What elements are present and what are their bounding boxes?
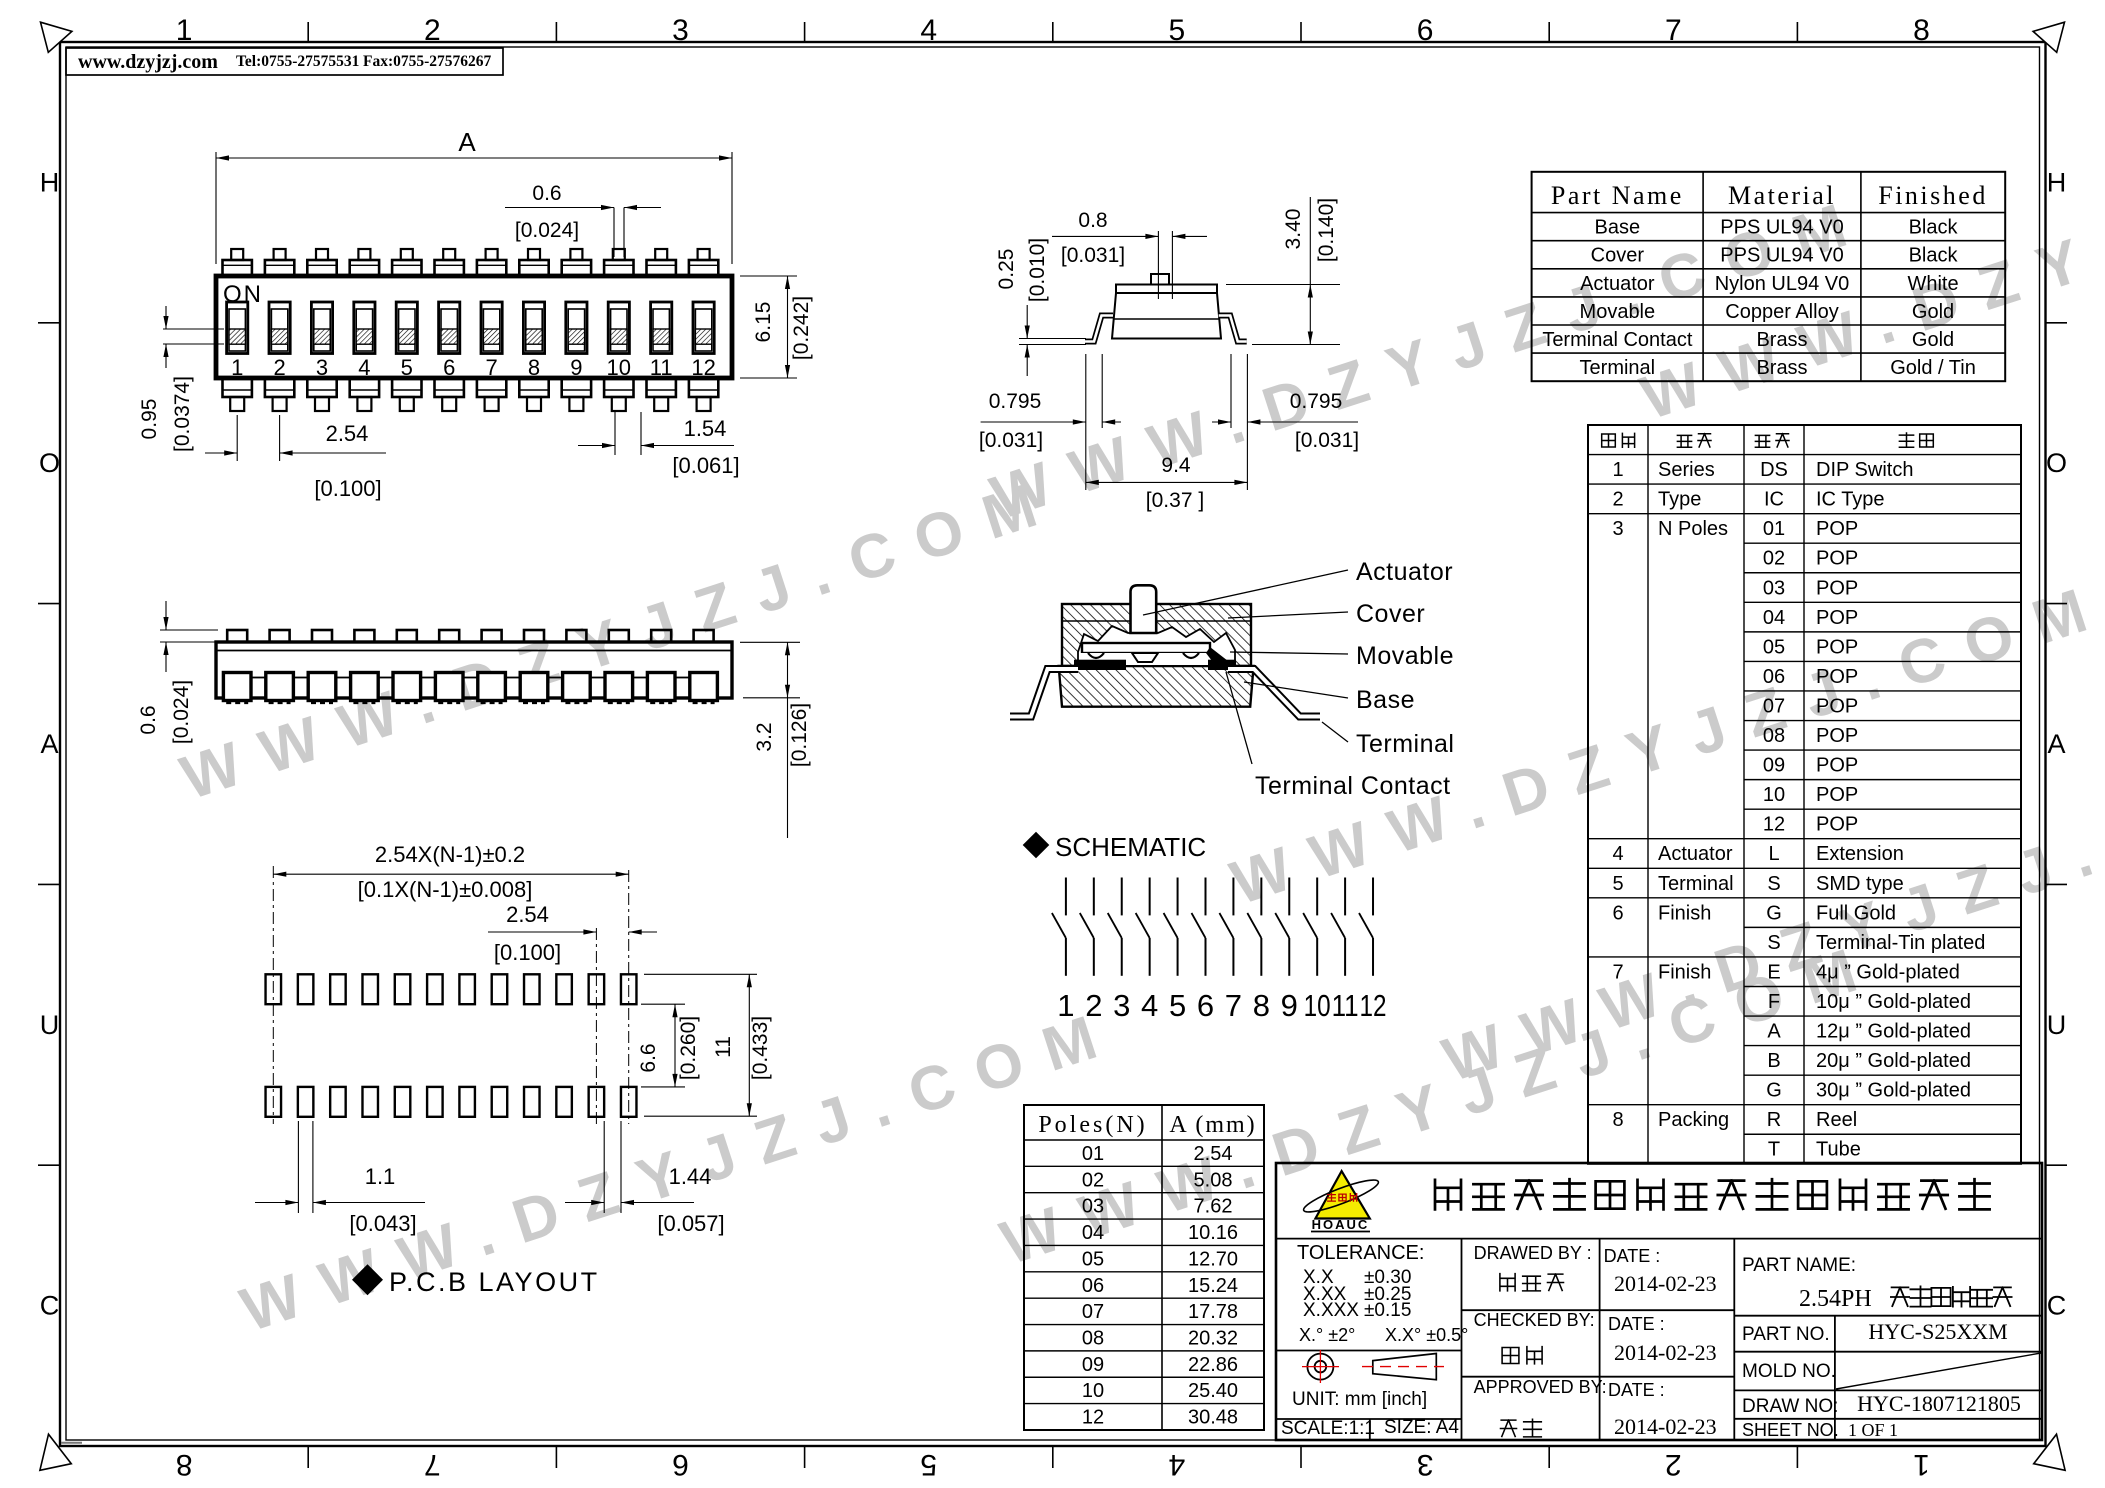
svg-text:2: 2: [1665, 1448, 1682, 1481]
svg-text:0.95: 0.95: [138, 399, 161, 440]
svg-text:DIP Switch: DIP Switch: [1816, 459, 1913, 481]
svg-text:1: 1: [231, 355, 243, 380]
svg-text:08: 08: [1082, 1328, 1104, 1350]
svg-text:Copper Alloy: Copper Alloy: [1725, 301, 1838, 323]
svg-text:7: 7: [424, 1448, 441, 1481]
svg-text:Terminal Contact: Terminal Contact: [1255, 772, 1451, 800]
svg-text:3.2: 3.2: [753, 722, 776, 751]
svg-text:DS: DS: [1760, 459, 1788, 481]
svg-text:[0.0374]: [0.0374]: [171, 376, 194, 452]
svg-text:5: 5: [1169, 988, 1186, 1023]
svg-text:2.54: 2.54: [326, 421, 369, 446]
svg-text:3: 3: [316, 355, 328, 380]
svg-text:1 OF 1: 1 OF 1: [1848, 1420, 1898, 1440]
svg-text:7: 7: [1665, 14, 1682, 47]
svg-text:POP: POP: [1816, 636, 1858, 658]
svg-text:22.86: 22.86: [1188, 1354, 1238, 1376]
svg-text:POP: POP: [1816, 548, 1858, 570]
svg-text:6: 6: [672, 1448, 689, 1481]
svg-text:4: 4: [920, 14, 937, 47]
svg-text:2: 2: [424, 14, 441, 47]
svg-text:30.48: 30.48: [1188, 1407, 1238, 1429]
svg-text:6: 6: [1417, 14, 1434, 47]
svg-text:5: 5: [920, 1448, 937, 1481]
svg-text:IC Type: IC Type: [1816, 489, 1885, 511]
svg-text:2.54X(N-1)±0.2: 2.54X(N-1)±0.2: [375, 842, 525, 867]
svg-text:0.795: 0.795: [989, 390, 1042, 413]
svg-text:Terminal: Terminal: [1658, 873, 1734, 895]
svg-text:5: 5: [1169, 14, 1186, 47]
svg-text:01: 01: [1082, 1143, 1104, 1165]
svg-text:8: 8: [528, 355, 540, 380]
svg-text:06: 06: [1763, 666, 1785, 688]
svg-text:2: 2: [1612, 489, 1623, 511]
svg-text:11: 11: [712, 1036, 735, 1058]
svg-text:C: C: [40, 1291, 60, 1321]
svg-text:POP: POP: [1816, 607, 1858, 629]
svg-text:Gold: Gold: [1912, 329, 1954, 351]
svg-text:0.6: 0.6: [137, 705, 160, 734]
svg-text:8: 8: [176, 1448, 193, 1481]
svg-text:SCALE:1:1: SCALE:1:1: [1281, 1418, 1375, 1439]
svg-text:±0.15: ±0.15: [1364, 1300, 1411, 1321]
svg-text:N Poles: N Poles: [1658, 518, 1728, 540]
svg-text:PART NO.: PART NO.: [1742, 1324, 1830, 1345]
svg-text:DRAW NO:: DRAW NO:: [1742, 1396, 1838, 1417]
svg-text:6.6: 6.6: [637, 1043, 660, 1072]
svg-text:Actuator: Actuator: [1658, 843, 1733, 865]
svg-text:12.70: 12.70: [1188, 1248, 1238, 1270]
svg-text:25.40: 25.40: [1188, 1380, 1238, 1402]
svg-text:9: 9: [570, 355, 582, 380]
svg-text:1: 1: [1913, 1448, 1930, 1481]
svg-text:SHEET NO.: SHEET NO.: [1742, 1420, 1839, 1440]
svg-text:Base: Base: [1595, 217, 1641, 239]
svg-text:[0.057]: [0.057]: [657, 1211, 724, 1236]
svg-text:8: 8: [1913, 14, 1930, 47]
svg-text:2014-02-23: 2014-02-23: [1614, 1414, 1717, 1439]
svg-text:POP: POP: [1816, 577, 1858, 599]
svg-text:POP: POP: [1816, 725, 1858, 747]
svg-text:5: 5: [1612, 873, 1623, 895]
svg-text:A: A: [458, 127, 476, 157]
svg-text:PART NAME:: PART NAME:: [1742, 1255, 1856, 1276]
svg-text:[0.031]: [0.031]: [979, 429, 1043, 452]
svg-text:A: A: [40, 729, 58, 759]
svg-text:POP: POP: [1816, 518, 1858, 540]
svg-text:SCHEMATIC: SCHEMATIC: [1055, 832, 1206, 862]
svg-text:Finish: Finish: [1658, 961, 1711, 983]
svg-text:12μ ” Gold-plated: 12μ ” Gold-plated: [1816, 1021, 1971, 1043]
svg-text:Terminal-Tin plated: Terminal-Tin plated: [1816, 932, 1985, 954]
svg-text:DATE :: DATE :: [1608, 1380, 1665, 1400]
svg-text:A (mm): A (mm): [1169, 1112, 1256, 1138]
svg-text:04: 04: [1082, 1222, 1104, 1244]
svg-text:APPROVED BY:: APPROVED BY:: [1474, 1377, 1607, 1397]
svg-text:S: S: [1767, 873, 1780, 895]
svg-text:O: O: [39, 448, 60, 478]
svg-text:10: 10: [1763, 784, 1785, 806]
svg-text:POP: POP: [1816, 695, 1858, 717]
svg-text:H: H: [40, 167, 60, 197]
svg-text:[0.140]: [0.140]: [1315, 198, 1338, 262]
svg-text:U: U: [2047, 1010, 2067, 1040]
svg-text:Tube: Tube: [1816, 1139, 1861, 1161]
svg-text:H: H: [2047, 167, 2067, 197]
svg-text:PPS UL94 V0: PPS UL94 V0: [1720, 217, 1843, 239]
svg-text:G: G: [1766, 1080, 1782, 1102]
svg-text:12: 12: [1360, 988, 1387, 1023]
svg-text:[0.043]: [0.043]: [349, 1211, 416, 1236]
svg-text:PPS UL94 V0: PPS UL94 V0: [1720, 245, 1843, 267]
svg-text:HOAUC: HOAUC: [1312, 1217, 1370, 1232]
svg-text:7: 7: [485, 355, 497, 380]
svg-text:Terminal Contact: Terminal Contact: [1542, 329, 1693, 351]
svg-text:www.dzyjzj.com: www.dzyjzj.com: [78, 51, 218, 73]
svg-text:12: 12: [1082, 1407, 1104, 1429]
svg-text:7.62: 7.62: [1194, 1196, 1233, 1218]
svg-text:Poles(N): Poles(N): [1038, 1112, 1147, 1138]
svg-text:6.15: 6.15: [752, 302, 775, 343]
svg-text:03: 03: [1082, 1196, 1104, 1218]
svg-text:[0.031]: [0.031]: [1061, 244, 1125, 267]
svg-text:Terminal: Terminal: [1580, 357, 1656, 379]
svg-text:7: 7: [1612, 961, 1623, 983]
svg-text:Black: Black: [1909, 245, 1959, 267]
svg-text:2: 2: [273, 355, 285, 380]
svg-text:15.24: 15.24: [1188, 1275, 1238, 1297]
svg-text:Packing: Packing: [1658, 1109, 1729, 1131]
svg-text:POP: POP: [1816, 666, 1858, 688]
svg-text:02: 02: [1082, 1169, 1104, 1191]
svg-text:6: 6: [1612, 902, 1623, 924]
svg-text:3: 3: [1612, 518, 1623, 540]
svg-text:2.54: 2.54: [1194, 1143, 1233, 1165]
svg-text:IC: IC: [1764, 489, 1784, 511]
svg-text:MOLD NO.: MOLD NO.: [1742, 1361, 1836, 1382]
svg-text:Finished: Finished: [1878, 181, 1988, 210]
svg-text:2.54PH: 2.54PH: [1799, 1286, 1872, 1312]
svg-text:04: 04: [1763, 607, 1785, 629]
svg-text:02: 02: [1763, 548, 1785, 570]
svg-text:DATE :: DATE :: [1608, 1314, 1665, 1334]
svg-text:10: 10: [1082, 1380, 1104, 1402]
svg-text:L: L: [1768, 843, 1779, 865]
svg-text:8: 8: [1612, 1109, 1623, 1131]
svg-text:F: F: [1768, 991, 1780, 1013]
svg-text:3: 3: [1417, 1448, 1434, 1481]
svg-text:[0.100]: [0.100]: [494, 940, 561, 965]
svg-text:05: 05: [1763, 636, 1785, 658]
svg-text:SIZE: A4: SIZE: A4: [1384, 1417, 1459, 1438]
svg-text:09: 09: [1763, 755, 1785, 777]
svg-text:6: 6: [443, 355, 455, 380]
svg-text:Actuator: Actuator: [1356, 558, 1453, 586]
svg-text:Gold / Tin: Gold / Tin: [1890, 357, 1976, 379]
svg-text:12: 12: [1763, 814, 1785, 836]
svg-text:R: R: [1767, 1109, 1781, 1131]
svg-text:ON: ON: [223, 281, 263, 308]
svg-text:P.C.B LAYOUT: P.C.B LAYOUT: [389, 1267, 600, 1297]
svg-text:G: G: [1766, 902, 1782, 924]
svg-text:[0.433]: [0.433]: [749, 1016, 772, 1080]
svg-text:07: 07: [1763, 695, 1785, 717]
svg-text:Extension: Extension: [1816, 843, 1904, 865]
svg-text:10: 10: [607, 355, 631, 380]
svg-text:POP: POP: [1816, 784, 1858, 806]
svg-text:Base: Base: [1356, 686, 1415, 714]
svg-text:[0.031]: [0.031]: [1295, 429, 1359, 452]
svg-text:Nylon UL94 V0: Nylon UL94 V0: [1715, 273, 1850, 295]
svg-text:[0.260]: [0.260]: [677, 1016, 700, 1080]
svg-text:A: A: [1767, 1021, 1781, 1043]
svg-text:1: 1: [1612, 459, 1623, 481]
svg-text:C: C: [2047, 1291, 2067, 1321]
svg-text:Actuator: Actuator: [1580, 273, 1655, 295]
svg-text:5: 5: [401, 355, 413, 380]
svg-text:Tel:0755-27575531: Tel:0755-27575531: [236, 53, 359, 70]
svg-text:12: 12: [691, 355, 715, 380]
svg-text:[0.126]: [0.126]: [788, 703, 811, 767]
svg-text:20μ ” Gold-plated: 20μ ” Gold-plated: [1816, 1050, 1971, 1072]
svg-text:Full Gold: Full Gold: [1816, 902, 1896, 924]
svg-text:7: 7: [1225, 988, 1242, 1023]
svg-text:[0.100]: [0.100]: [314, 476, 381, 501]
svg-text:Brass: Brass: [1756, 357, 1807, 379]
svg-text:S: S: [1767, 932, 1780, 954]
svg-text:Series: Series: [1658, 459, 1715, 481]
svg-text:T: T: [1768, 1139, 1780, 1161]
svg-text:3: 3: [1113, 988, 1130, 1023]
svg-text:17.78: 17.78: [1188, 1301, 1238, 1323]
svg-text:X.X° ±0.5°: X.X° ±0.5°: [1385, 1325, 1468, 1345]
svg-text:2014-02-23: 2014-02-23: [1614, 1271, 1717, 1296]
svg-text:Cover: Cover: [1356, 600, 1425, 628]
svg-text:[0.061]: [0.061]: [672, 453, 739, 478]
svg-text:0.8: 0.8: [1078, 209, 1107, 232]
svg-text:1.44: 1.44: [669, 1164, 712, 1189]
svg-text:Cover: Cover: [1591, 245, 1645, 267]
svg-text:11: 11: [1332, 988, 1359, 1023]
svg-text:0.795: 0.795: [1290, 390, 1343, 413]
svg-text:10: 10: [1304, 988, 1331, 1023]
svg-text:Material: Material: [1728, 181, 1836, 210]
svg-text:2014-02-23: 2014-02-23: [1614, 1340, 1717, 1365]
svg-text:08: 08: [1763, 725, 1785, 747]
svg-text:09: 09: [1082, 1354, 1104, 1376]
svg-text:Gold: Gold: [1912, 301, 1954, 323]
svg-text:2: 2: [1085, 988, 1102, 1023]
svg-text:Brass: Brass: [1756, 329, 1807, 351]
svg-text:Type: Type: [1658, 489, 1701, 511]
svg-text:HYC-1807121805: HYC-1807121805: [1857, 1391, 2021, 1416]
svg-text:4: 4: [1612, 843, 1623, 865]
svg-text:0.6: 0.6: [532, 182, 561, 205]
svg-text:POP: POP: [1816, 755, 1858, 777]
svg-text:1.54: 1.54: [684, 416, 727, 441]
svg-text:SMD type: SMD type: [1816, 873, 1904, 895]
svg-text:1: 1: [1057, 988, 1074, 1023]
svg-text:8: 8: [1253, 988, 1270, 1023]
svg-text:03: 03: [1763, 577, 1785, 599]
svg-text:6: 6: [1197, 988, 1214, 1023]
svg-text:4: 4: [358, 355, 370, 380]
svg-text:Reel: Reel: [1816, 1109, 1857, 1131]
svg-text:U: U: [40, 1010, 60, 1040]
svg-text:0.25: 0.25: [995, 249, 1018, 290]
svg-text:2.54: 2.54: [506, 902, 549, 927]
svg-text:3.40: 3.40: [1282, 209, 1305, 250]
svg-text:4: 4: [1169, 1448, 1186, 1481]
svg-text:O: O: [2046, 448, 2067, 478]
svg-text:Part Name: Part Name: [1551, 181, 1684, 210]
svg-text:06: 06: [1082, 1275, 1104, 1297]
svg-text:E: E: [1767, 961, 1780, 983]
svg-text:4: 4: [1141, 988, 1158, 1023]
svg-text:[0.37 ]: [0.37 ]: [1146, 489, 1204, 512]
svg-text:TOLERANCE:: TOLERANCE:: [1297, 1242, 1424, 1264]
svg-text:05: 05: [1082, 1248, 1104, 1270]
svg-text:[0.024]: [0.024]: [170, 680, 193, 744]
svg-text:White: White: [1907, 273, 1958, 295]
svg-text:DRAWED BY :: DRAWED BY :: [1474, 1243, 1592, 1263]
svg-text:30μ ” Gold-plated: 30μ ” Gold-plated: [1816, 1080, 1971, 1102]
svg-text:1.1: 1.1: [365, 1164, 396, 1189]
svg-text:9.4: 9.4: [1161, 454, 1191, 477]
svg-text:Finish: Finish: [1658, 902, 1711, 924]
svg-text:Fax:0755-27576267: Fax:0755-27576267: [363, 53, 492, 70]
svg-text:1: 1: [176, 14, 193, 47]
svg-text:UNIT: mm [inch]: UNIT: mm [inch]: [1292, 1389, 1427, 1410]
svg-text:[0.242]: [0.242]: [790, 296, 813, 360]
svg-text:Movable: Movable: [1356, 642, 1454, 670]
svg-text:X.XXX: X.XXX: [1303, 1300, 1359, 1321]
svg-text:4μ ” Gold-plated: 4μ ” Gold-plated: [1816, 961, 1960, 983]
svg-text:07: 07: [1082, 1301, 1104, 1323]
svg-text:11: 11: [650, 355, 673, 380]
svg-text:Movable: Movable: [1580, 301, 1656, 323]
svg-text:Terminal: Terminal: [1356, 730, 1454, 758]
svg-text:B: B: [1767, 1050, 1780, 1072]
svg-text:A: A: [2047, 729, 2065, 759]
svg-text:10.16: 10.16: [1188, 1222, 1238, 1244]
svg-text:[0.024]: [0.024]: [515, 219, 579, 242]
svg-text:POP: POP: [1816, 814, 1858, 836]
svg-text:10μ ” Gold-plated: 10μ ” Gold-plated: [1816, 991, 1971, 1013]
svg-text:5.08: 5.08: [1194, 1169, 1233, 1191]
svg-text:20.32: 20.32: [1188, 1328, 1238, 1350]
svg-text:9: 9: [1281, 988, 1298, 1023]
svg-text:CHECKED BY:: CHECKED BY:: [1474, 1310, 1595, 1330]
svg-text:DATE :: DATE :: [1604, 1246, 1661, 1266]
svg-text:X.° ±2°: X.° ±2°: [1299, 1325, 1355, 1345]
svg-text:01: 01: [1763, 518, 1785, 540]
svg-text:[0.1X(N-1)±0.008]: [0.1X(N-1)±0.008]: [358, 877, 533, 902]
svg-text:3: 3: [672, 14, 689, 47]
svg-text:[0.010]: [0.010]: [1026, 238, 1049, 302]
svg-text:HYC-S25XXM: HYC-S25XXM: [1868, 1319, 2007, 1344]
svg-text:Black: Black: [1909, 217, 1959, 239]
